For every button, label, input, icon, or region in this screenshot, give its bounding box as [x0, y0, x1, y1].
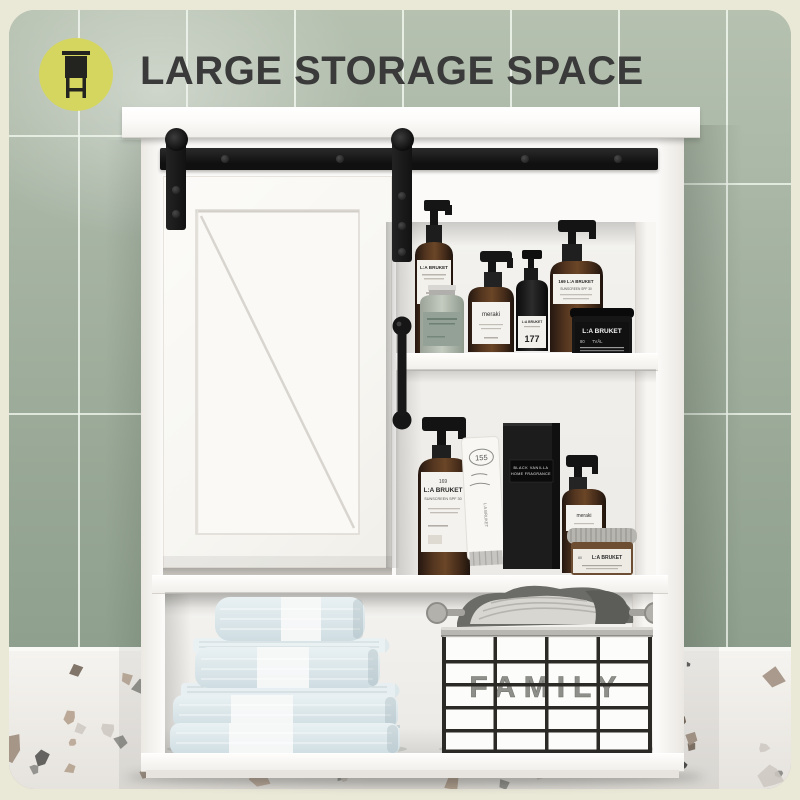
- svg-text:SUNSCREEN SPF 30: SUNSCREEN SPF 30: [424, 497, 462, 501]
- strap-bolt: [172, 210, 180, 218]
- cabinet-wall-shadow: [684, 125, 742, 647]
- folded-towel-stack: [170, 597, 400, 755]
- cabinet-plinth: [146, 770, 679, 778]
- feature-badge: [39, 38, 113, 111]
- headline: LARGE STORAGE SPACE: [140, 49, 644, 94]
- door-roller: [165, 128, 188, 151]
- white-tube: 155 L:A BRUKET: [461, 436, 505, 566]
- svg-text:SUNSCREEN SPF 30: SUNSCREEN SPF 30: [560, 287, 592, 291]
- svg-text:155: 155: [475, 453, 488, 463]
- black-pump-bottle: L:A BRUKET 177: [516, 250, 548, 351]
- rail-bolt: [221, 155, 229, 163]
- wire-basket: FAMILY: [427, 586, 653, 754]
- svg-text:177: 177: [524, 334, 539, 344]
- strap-bolt: [398, 248, 406, 256]
- middle-shelf-products: 169 L:A BRUKET SUNSCREEN SPF 30 155 L:A …: [410, 415, 640, 577]
- strap-bolt: [398, 222, 406, 230]
- svg-text:TVÅL: TVÅL: [592, 339, 603, 344]
- door-roller: [391, 128, 414, 151]
- svg-text:L:A BRUKET: L:A BRUKET: [424, 487, 463, 494]
- svg-text:meraki: meraki: [482, 312, 500, 318]
- black-jar: L:A BRUKET 80 TVÅL: [570, 308, 634, 356]
- strap-bolt: [172, 186, 180, 194]
- svg-text:BLACK VANILLA: BLACK VANILLA: [513, 466, 548, 470]
- top-shelf-products: L:A BRUKET: [400, 196, 640, 356]
- rail-bolt: [521, 155, 529, 163]
- svg-text:80: 80: [578, 556, 582, 560]
- svg-text:L:A BRUKET: L:A BRUKET: [522, 320, 544, 324]
- folded-knitwear: [457, 586, 633, 627]
- svg-text:L:A BRUKET: L:A BRUKET: [582, 328, 622, 335]
- svg-text:169: 169: [439, 479, 448, 485]
- svg-text:80: 80: [580, 339, 585, 344]
- amber-pump-bottle: meraki: [468, 251, 514, 352]
- bottom-shelf-contents: FAMILY: [165, 583, 653, 755]
- amber-jar-silver-lid: L:A BRUKET 80: [567, 528, 637, 575]
- svg-text:L:A BRUKET: L:A BRUKET: [420, 265, 448, 270]
- cabinet-wall-shadow: [105, 140, 143, 647]
- rail-bolt: [614, 155, 622, 163]
- black-fragrance-box: BLACK VANILLA HOME FRAGRANCE: [503, 423, 560, 569]
- shelf-shadow: [398, 369, 656, 383]
- svg-text:L:A BRUKET: L:A BRUKET: [592, 555, 622, 561]
- svg-text:HOME FRAGRANCE: HOME FRAGRANCE: [511, 472, 551, 476]
- door-handle: [391, 316, 413, 430]
- cabinet-icon: [56, 49, 96, 101]
- rail-bolt: [336, 155, 344, 163]
- barn-door-panel: [163, 176, 392, 568]
- svg-text:169 L:A BRUKET: 169 L:A BRUKET: [558, 279, 594, 284]
- strap-bolt: [398, 192, 406, 200]
- marketing-image: L:A BRUKET: [0, 0, 800, 800]
- svg-text:meraki: meraki: [576, 513, 591, 519]
